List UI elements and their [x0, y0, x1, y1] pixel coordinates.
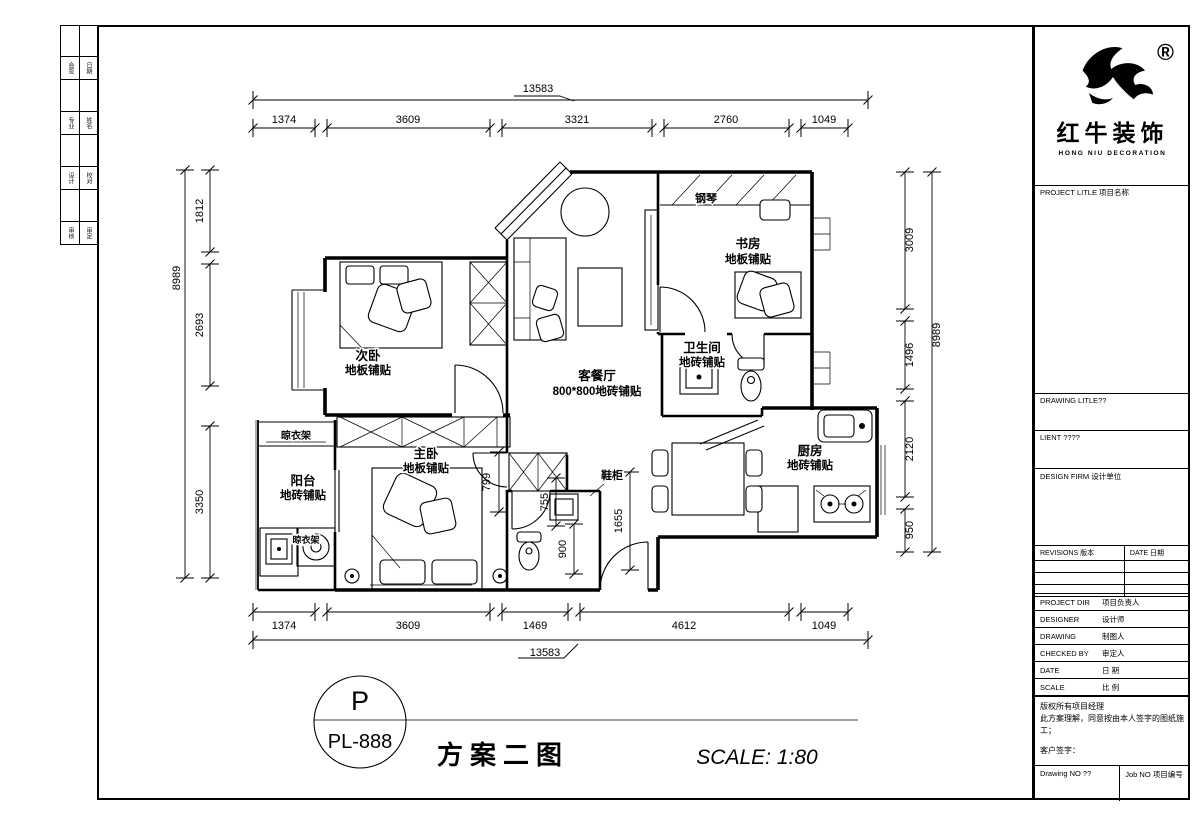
- info-label-en: PROJECT DIR: [1035, 598, 1102, 607]
- info-label-cn: 项目负责人: [1102, 597, 1140, 608]
- annotation-shoe-cabinet: 鞋柜: [601, 468, 623, 482]
- note-line3: 客户签字：: [1040, 745, 1186, 757]
- closets: [337, 175, 810, 491]
- room-name-kitchen: 厨房: [797, 443, 822, 458]
- room-name-balcony: 阳台: [290, 473, 315, 488]
- annotation-drying-rack: 晾衣架: [281, 429, 311, 442]
- dim-label: 4612: [672, 620, 696, 632]
- info-label-en: CHECKED BY: [1035, 649, 1102, 658]
- drawing-title: 方案二图: [437, 740, 569, 770]
- job-no-cell: Job NO 项目编号: [1120, 766, 1190, 801]
- revisions-header: REVISIONS 版本: [1035, 546, 1125, 560]
- dim-label: 2693: [194, 313, 206, 337]
- brand-name-en: HONG NIU DECORATION: [1035, 150, 1190, 157]
- dim-label: 1496: [904, 343, 916, 367]
- room-name-bedroom2: 次卧: [355, 348, 381, 363]
- design-firm-section: DESIGN FIRM 设计单位: [1035, 468, 1190, 546]
- dim-label: 3009: [904, 228, 916, 252]
- info-label-cn: 设计师: [1102, 614, 1125, 625]
- revisions-date-header: DATE 日期: [1125, 546, 1164, 560]
- dim-right-total: 8989: [931, 323, 943, 347]
- info-label-en: DATE: [1035, 666, 1102, 675]
- room-finish: 地板铺贴: [345, 363, 391, 377]
- brand-logo-block: ® 红牛装饰 HONG NIU DECORATION: [1035, 25, 1190, 186]
- note-line2: 此方案理解，同意按由本人签字的图纸施工；: [1040, 713, 1186, 737]
- detail-tag-letter: P: [351, 686, 369, 716]
- annotation-drying-rack: 晾衣架: [292, 534, 319, 545]
- info-row-drawing: DRAWING 制图人: [1035, 627, 1190, 645]
- project-title-label: PROJECT LITLE 项目名称: [1035, 185, 1190, 198]
- note-line1: 版权所有项目经理: [1040, 701, 1186, 713]
- room-finish: 地砖铺贴: [280, 488, 326, 502]
- info-label-cn: 比 例: [1102, 682, 1119, 693]
- info-row-scale: SCALE 比 例: [1035, 678, 1190, 696]
- client-section: LIENT ????: [1035, 430, 1190, 469]
- dim-label: 1655: [613, 509, 625, 533]
- dim-top-total: 13583: [523, 83, 554, 95]
- info-label-en: DESIGNER: [1035, 615, 1102, 624]
- dim-label: 1374: [272, 114, 296, 126]
- dim-label: 1049: [812, 114, 836, 126]
- revisions-table: REVISIONS 版本 DATE 日期: [1035, 545, 1190, 594]
- info-label-cn: 日 期: [1102, 665, 1119, 676]
- floor-plan-canvas: 13583 1374 3609 3321 2760 1049 1374 3609…: [0, 0, 1030, 824]
- dim-label: 900: [557, 540, 569, 558]
- room-finish: 地板铺贴: [725, 252, 771, 266]
- revision-row: [1035, 561, 1190, 573]
- title-block: ® 红牛装饰 HONG NIU DECORATION PROJECT LITLE…: [1032, 25, 1190, 800]
- dimension-labels: 13583 1374 3609 3321 2760 1049 1374 3609…: [171, 83, 943, 659]
- dim-label: 2120: [904, 437, 916, 461]
- drawing-scale: SCALE: 1:80: [696, 746, 818, 769]
- walls: [256, 172, 877, 590]
- dim-bottom-total: 13583: [530, 647, 561, 659]
- dim-label: 1469: [523, 620, 547, 632]
- dim-label: 755: [539, 493, 551, 511]
- room-finish: 地砖铺贴: [787, 458, 833, 472]
- dim-left-total: 8989: [171, 266, 183, 290]
- info-row-checked-by: CHECKED BY 审定人: [1035, 644, 1190, 662]
- dim-label: 799: [481, 473, 493, 491]
- room-finish: 地砖铺贴: [679, 355, 725, 369]
- drawing-title-section: DRAWING LITLE??: [1035, 393, 1190, 431]
- number-cells: Drawing NO ?? Job NO 项目编号: [1035, 765, 1190, 801]
- dim-label: 3609: [396, 114, 420, 126]
- bird-logo-icon: [1065, 37, 1161, 109]
- info-label-en: DRAWING: [1035, 632, 1102, 641]
- dim-label: 3321: [565, 114, 589, 126]
- dim-label: 1374: [272, 620, 296, 632]
- room-name-living: 客餐厅: [577, 368, 616, 383]
- room-name-bathroom: 卫生间: [683, 340, 721, 355]
- dim-label: 3350: [194, 490, 206, 514]
- revision-row: [1035, 573, 1190, 585]
- info-row-designer: DESIGNER 设计师: [1035, 610, 1190, 628]
- info-row-date: DATE 日 期: [1035, 661, 1190, 679]
- room-finish: 800*800地砖铺贴: [553, 384, 642, 398]
- room-name-study: 书房: [735, 236, 760, 251]
- drawing-title-label: DRAWING LITLE??: [1035, 394, 1190, 405]
- drawing-no-cell: Drawing NO ??: [1035, 766, 1120, 801]
- copyright-note: 版权所有项目经理 此方案理解，同意按由本人签字的图纸施工； 客户签字：: [1035, 695, 1190, 765]
- room-name-master: 主卧: [413, 446, 439, 461]
- dim-label: 2760: [714, 114, 738, 126]
- detail-tag-number: PL-888: [328, 731, 393, 753]
- sheet-footer: P PL-888 方案二图 SCALE: 1:80: [314, 676, 858, 770]
- annotation-piano: 钢琴: [695, 191, 717, 205]
- room-finish: 地板铺贴: [403, 461, 449, 475]
- info-label-cn: 审定人: [1102, 648, 1125, 659]
- dim-label: 3609: [396, 620, 420, 632]
- client-label: LIENT ????: [1035, 431, 1190, 442]
- registered-trademark: ®: [1157, 39, 1174, 66]
- info-row-project-dir: PROJECT DIR 项目负责人: [1035, 593, 1190, 611]
- dim-label: 1049: [812, 620, 836, 632]
- dim-label: 1812: [194, 199, 206, 223]
- doors: [455, 287, 764, 590]
- design-firm-label: DESIGN FIRM 设计单位: [1035, 469, 1190, 482]
- project-title-section: PROJECT LITLE 项目名称: [1035, 185, 1190, 393]
- info-label-en: SCALE: [1035, 683, 1102, 692]
- info-label-cn: 制图人: [1102, 631, 1125, 642]
- dim-label: 950: [904, 521, 916, 539]
- brand-name-cn: 红牛装饰: [1035, 114, 1190, 148]
